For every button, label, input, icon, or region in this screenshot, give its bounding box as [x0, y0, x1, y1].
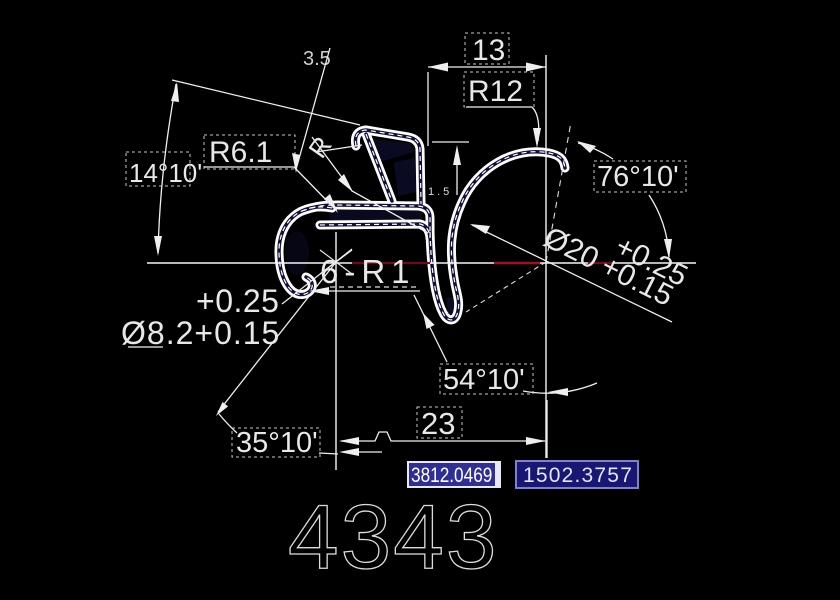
- svg-text:+0.25: +0.25: [196, 283, 279, 319]
- svg-text:13: 13: [472, 34, 505, 67]
- svg-text:1502.3757: 1502.3757: [523, 464, 633, 487]
- svg-text:76°10': 76°10': [597, 161, 679, 193]
- svg-text:23: 23: [421, 406, 455, 441]
- svg-text:3812.0469: 3812.0469: [411, 465, 492, 488]
- svg-text:4343: 4343: [288, 487, 498, 588]
- svg-text:R6.1: R6.1: [209, 136, 272, 169]
- svg-text:1.5: 1.5: [428, 186, 452, 198]
- svg-text:14°10': 14°10': [129, 158, 202, 188]
- svg-text:35°10': 35°10': [236, 427, 318, 459]
- svg-text:Ø8.2+0.15: Ø8.2+0.15: [121, 315, 280, 351]
- svg-text:R12: R12: [468, 75, 523, 108]
- svg-text:6-R1: 6-R1: [320, 253, 416, 290]
- svg-text:54°10': 54°10': [443, 364, 525, 396]
